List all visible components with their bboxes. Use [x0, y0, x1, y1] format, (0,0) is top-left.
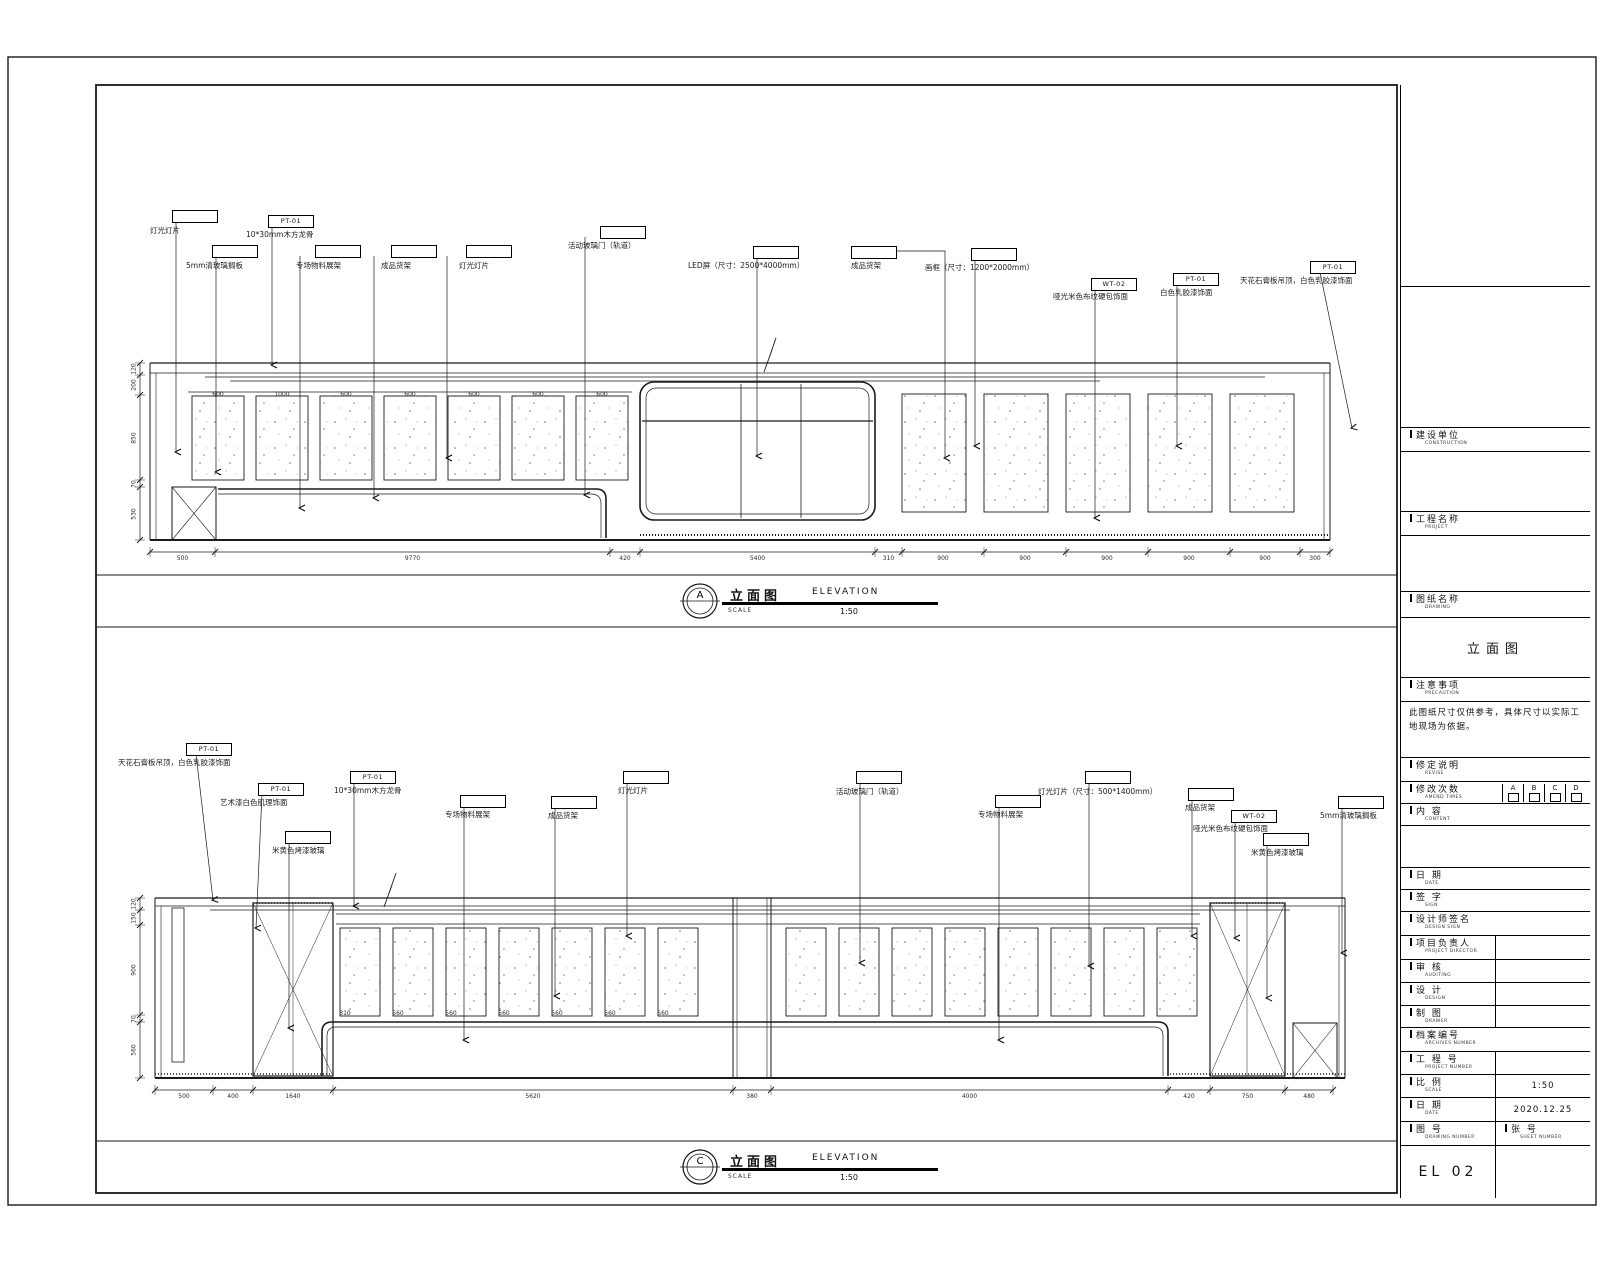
panel-dimension-value: 560 [604, 1010, 615, 1017]
callout-code-box [1338, 796, 1384, 809]
title-block: 建设单位 CONSTRUCTION 工程名称 PROJECT 图纸名称 DRAW… [1400, 85, 1590, 1198]
callout-text: 米黄色烤漆玻璃 [272, 846, 325, 855]
director-row: 项目负责人PROJECT DIRECTOR [1401, 936, 1590, 960]
scale-row: 比 例SCALE 1:50 [1401, 1075, 1590, 1098]
callout-code-box: PT-01 [1310, 261, 1356, 274]
panel-dimension-value: 310 [339, 1010, 350, 1017]
callout-text: 哑光米色布纹硬包饰面 [1053, 292, 1128, 301]
scale-label: SCALE [728, 607, 752, 614]
amend-options: A B C D [1502, 784, 1586, 802]
callout-text: 成品货架 [381, 261, 411, 270]
callout-text: 专场物料展架 [978, 810, 1023, 819]
display-panel [902, 394, 966, 512]
callout-code-box [623, 771, 669, 784]
display-panel [393, 928, 433, 1016]
callout-text: 5mm清玻璃搁板 [1320, 811, 1377, 820]
date1-row: 日 期 DATE [1401, 868, 1590, 890]
dimension-value: 420 [1183, 1093, 1194, 1100]
callout-code-box: PT-01 [186, 743, 232, 756]
callout-text: 10*30mm木方龙骨 [334, 786, 401, 795]
callout-code-box [315, 245, 361, 258]
dimension-value: 400 [227, 1093, 238, 1100]
drawer-row: 制 图DRAWER [1401, 1006, 1590, 1028]
display-panel [384, 396, 436, 480]
callout-code-box: WT-02 [1091, 278, 1137, 291]
display-panel [512, 396, 564, 480]
dimension-value: 380 [746, 1093, 757, 1100]
column-x-box [172, 487, 216, 540]
display-panel [448, 396, 500, 480]
elevation-mark-symbol: C [680, 1145, 720, 1189]
callout-text: 5mm清玻璃搁板 [186, 261, 243, 270]
callout-text: 天花石膏板吊顶，白色乳胶漆饰面 [1240, 276, 1353, 285]
dimension-value: 500 [178, 1093, 189, 1100]
callout-code-box [460, 795, 506, 808]
display-panel [945, 928, 985, 1016]
display-panel [1051, 928, 1091, 1016]
display-panel [605, 928, 645, 1016]
display-panel [998, 928, 1038, 1016]
svg-text:C: C [697, 1156, 704, 1167]
construction-label: 建设单位 CONSTRUCTION [1401, 428, 1590, 452]
panel-dimension-value: 560 [551, 1010, 562, 1017]
date2-row: 日 期DATE 2020.12.25 [1401, 1098, 1590, 1122]
callout-code-box [466, 245, 512, 258]
dimension-value: 5400 [750, 555, 765, 562]
dimension-value: 70 [131, 480, 138, 488]
content-label: 内 容 CONTENT [1401, 804, 1590, 826]
project-number-row: 工 程 号PROJECT NUMBER [1401, 1052, 1590, 1075]
callout-code-box [391, 245, 437, 258]
svg-text:A: A [697, 590, 704, 601]
design-row: 设 计DESIGN [1401, 983, 1590, 1006]
panel-dimension-value: 560 [445, 1010, 456, 1017]
display-panel [192, 396, 244, 480]
callout-text: 哑光米色布纹硬包饰面 [1193, 824, 1268, 833]
amend-checkbox[interactable] [1550, 793, 1561, 802]
dimension-value: 120 [131, 898, 138, 909]
display-panel [984, 394, 1048, 512]
callout-code-box: PT-01 [258, 783, 304, 796]
dimension-value: 530 [131, 508, 138, 519]
revision-label: 修定说明 REVISE [1401, 758, 1590, 782]
display-panel [499, 928, 539, 1016]
panel-dimension-value: 560 [657, 1010, 668, 1017]
scale-label: SCALE [728, 1173, 752, 1180]
display-panel [320, 396, 372, 480]
dimension-value: 560 [131, 1044, 138, 1055]
callout-text: 天花石膏板吊顶，白色乳胶漆饰面 [118, 758, 231, 767]
precaution-label: 注意事项 PRECAUTION [1401, 678, 1590, 702]
drawing-name-value: 立面图 [1401, 618, 1590, 678]
sheet-number-value [1496, 1146, 1590, 1198]
dimension-value: 480 [1303, 1093, 1314, 1100]
callout-code-box [851, 246, 897, 259]
panel-dimension-value: 560 [392, 1010, 403, 1017]
date-value: 2020.12.25 [1496, 1098, 1590, 1121]
content-blank [1401, 826, 1590, 868]
amend-times-row: 修改次数 AMEND TIMES A B C D [1401, 782, 1590, 804]
dimension-value: 5620 [525, 1093, 540, 1100]
callout-text: 活动玻璃门（轨道） [836, 787, 904, 796]
elevation-a-drawing [135, 221, 1352, 557]
callout-code-box [1085, 771, 1131, 784]
construction-value-cell [1401, 85, 1590, 287]
scale-value: 1:50 [1496, 1075, 1590, 1097]
amend-checkbox[interactable] [1529, 793, 1540, 802]
callout-text: 成品货架 [548, 811, 578, 820]
callout-text: LED屏（尺寸：2500*4000mm） [688, 261, 804, 270]
dimension-value: 750 [1242, 1093, 1253, 1100]
break-symbol [764, 338, 776, 372]
construction-blank [1401, 452, 1590, 512]
callout-text: 10*30mm木方龙骨 [246, 230, 313, 239]
number-value-row: EL 02 [1401, 1146, 1590, 1198]
callout-code-box [971, 248, 1017, 261]
elevation-a-titlebar: A 立面图 ELEVATION SCALE 1:50 [96, 575, 1397, 627]
dimension-value: 900 [1259, 555, 1270, 562]
callout-code-box [856, 771, 902, 784]
drawing-sheet: A 立面图 ELEVATION SCALE 1:50 C 立面图 ELEVATI… [0, 0, 1600, 1280]
callout-code-box [600, 226, 646, 239]
callout-text: 专场物料展架 [445, 810, 490, 819]
display-panel [340, 928, 380, 1016]
drawing-number-value: EL 02 [1401, 1146, 1496, 1198]
dimension-value: 200 [131, 379, 138, 390]
callout-code-box [551, 796, 597, 809]
panel-dimension-value: 1000 [274, 391, 289, 398]
callout-text: 艺术漆白色肌理饰面 [220, 798, 288, 807]
number-header-row: 图 号DRAWING NUMBER 张 号SHEET NUMBER [1401, 1122, 1590, 1146]
callout-text: 米黄色烤漆玻璃 [1251, 848, 1304, 857]
display-panel [552, 928, 592, 1016]
callout-code-box [212, 245, 258, 258]
callout-code-box [172, 210, 218, 223]
panel-dimension-value: 600 [404, 391, 415, 398]
callout-text: 白色乳胶漆饰面 [1160, 288, 1213, 297]
display-panel [786, 928, 826, 1016]
title-rule [722, 602, 938, 605]
wood-panel-right [1210, 903, 1285, 1076]
dimension-value: 900 [937, 555, 948, 562]
scale-value: 1:50 [840, 1173, 858, 1182]
sign-row: 签 字 SIGN [1401, 890, 1590, 912]
project-label: 工程名称 PROJECT [1401, 512, 1590, 536]
cad-linework [0, 0, 1600, 1280]
panel-dimension-value: 560 [498, 1010, 509, 1017]
callout-code-box [1263, 833, 1309, 846]
dimension-value: 300 [1309, 555, 1320, 562]
dimension-value: 900 [1019, 555, 1030, 562]
dimension-value: 120 [131, 363, 138, 374]
callout-code-box [285, 831, 331, 844]
display-panel [576, 396, 628, 480]
callout-text: 灯光灯片 [459, 261, 489, 270]
callout-code-box [753, 246, 799, 259]
display-panel [446, 928, 486, 1016]
dimension-value: 900 [1101, 555, 1112, 562]
callout-code-box [1188, 788, 1234, 801]
dimension-value: 500 [177, 555, 188, 562]
wood-panel-left [253, 903, 333, 1076]
callout-text: 专场物料展架 [296, 261, 341, 270]
amend-checkbox[interactable] [1571, 793, 1582, 802]
callout-text: 灯光灯片（尺寸：500*1400mm） [1038, 787, 1157, 796]
callout-text: 成品货架 [851, 261, 881, 270]
centre-pillar [733, 898, 771, 1078]
dimension-value: 70 [131, 1015, 138, 1023]
display-panel [1104, 928, 1144, 1016]
scale-value: 1:50 [840, 607, 858, 616]
archive-row: 档案编号 ARCHIVES NUMBER [1401, 1028, 1590, 1052]
callout-text: 灯光灯片 [150, 226, 180, 235]
callout-text: 画框（尺寸：1200*2000mm） [925, 263, 1034, 272]
dimension-value: 4000 [962, 1093, 977, 1100]
panel-dimension-value: 600 [212, 391, 223, 398]
elevation-c-drawing [135, 754, 1345, 1095]
display-panel [892, 928, 932, 1016]
design-sign-row: 设计师签名 DESIGN SIGN [1401, 912, 1590, 936]
elevation-title-en: ELEVATION [812, 1153, 879, 1163]
dimension-value: 850 [131, 432, 138, 443]
logo-cell [1401, 287, 1590, 428]
callout-text: 灯光灯片 [618, 786, 648, 795]
amend-checkbox[interactable] [1508, 793, 1519, 802]
callout-code-box: WT-02 [1231, 810, 1277, 823]
dimension-value: 150 [131, 912, 138, 923]
break-symbol [384, 873, 396, 907]
callout-text: 成品货架 [1185, 803, 1215, 812]
callout-code-box: PT-01 [268, 215, 314, 228]
elevation-mark-symbol: A [680, 579, 720, 623]
dimension-value: 9770 [405, 555, 420, 562]
panel-dimension-value: 600 [468, 391, 479, 398]
counter-band [218, 489, 606, 538]
title-rule [722, 1168, 938, 1171]
panel-dimension-value: 600 [340, 391, 351, 398]
column-x-box [1293, 1023, 1337, 1078]
callout-text: 活动玻璃门（轨道） [568, 241, 636, 250]
dimension-value: 900 [1183, 555, 1194, 562]
display-panel [1230, 394, 1294, 512]
dimension-value: 420 [619, 555, 630, 562]
dimension-value: 900 [131, 964, 138, 975]
panel-dimension-value: 600 [596, 391, 607, 398]
audit-row: 审 核AUDITING [1401, 960, 1590, 983]
led-screen-panel [640, 382, 875, 520]
dimension-value: 1640 [285, 1093, 300, 1100]
precaution-text: 此图纸尺寸仅供参考，具体尺寸以实际工地现场为依据。 [1401, 702, 1590, 758]
display-panel [1066, 394, 1130, 512]
elevation-c-titlebar: C 立面图 ELEVATION SCALE 1:50 [96, 1141, 1397, 1193]
display-panel [1157, 928, 1197, 1016]
callout-code-box [995, 795, 1041, 808]
panel-dimension-value: 600 [532, 391, 543, 398]
dimension-value: 310 [883, 555, 894, 562]
display-panel [1148, 394, 1212, 512]
display-panel [839, 928, 879, 1016]
counter-band [322, 1022, 1168, 1076]
drawing-name-label: 图纸名称 DRAWING [1401, 592, 1590, 618]
project-blank [1401, 536, 1590, 592]
display-panel [658, 928, 698, 1016]
callout-code-box: PT-01 [350, 771, 396, 784]
callout-code-box: PT-01 [1173, 273, 1219, 286]
elevation-title-en: ELEVATION [812, 587, 879, 597]
